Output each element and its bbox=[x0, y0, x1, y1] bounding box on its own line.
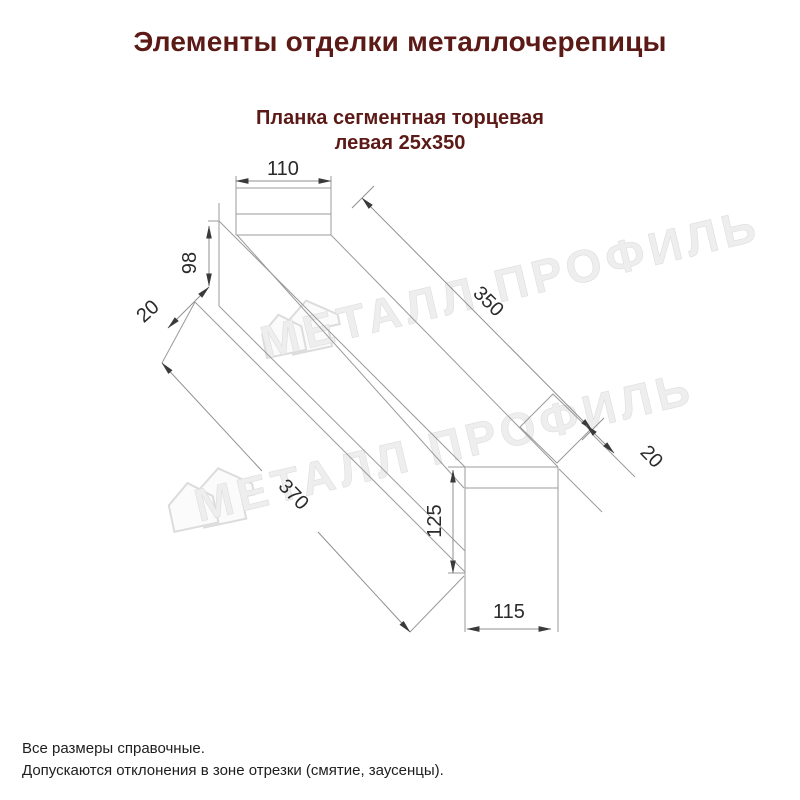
dimension-20-left: 20 bbox=[132, 287, 209, 328]
dimension-115-label: 115 bbox=[493, 601, 525, 623]
dimension-98-label: 98 bbox=[179, 252, 201, 274]
footnote-line-2: Допускаются отклонения в зоне отрезки (с… bbox=[22, 760, 444, 782]
dimension-20-left-label: 20 bbox=[132, 296, 163, 327]
watermark-row-1: МЕТАЛЛ ПРОФИЛЬ bbox=[255, 198, 765, 368]
watermark-text: МЕТАЛЛ ПРОФИЛЬ bbox=[255, 198, 765, 368]
dimension-98: 98 bbox=[179, 226, 209, 286]
dimension-110-label: 110 bbox=[267, 158, 299, 180]
dimension-20-right-label: 20 bbox=[636, 441, 667, 472]
technical-drawing: МЕТАЛЛ ПРОФИЛЬ МЕТАЛЛ ПРОФИЛЬ bbox=[0, 0, 800, 800]
footnote-line-1: Все размеры справочные. bbox=[22, 738, 444, 760]
footnotes: Все размеры справочные. Допускаются откл… bbox=[22, 738, 444, 782]
dimension-115: 115 bbox=[467, 601, 551, 629]
dimension-110: 110 bbox=[236, 158, 331, 181]
dimension-125-label: 125 bbox=[424, 504, 446, 537]
dimension-125: 125 bbox=[424, 470, 453, 573]
